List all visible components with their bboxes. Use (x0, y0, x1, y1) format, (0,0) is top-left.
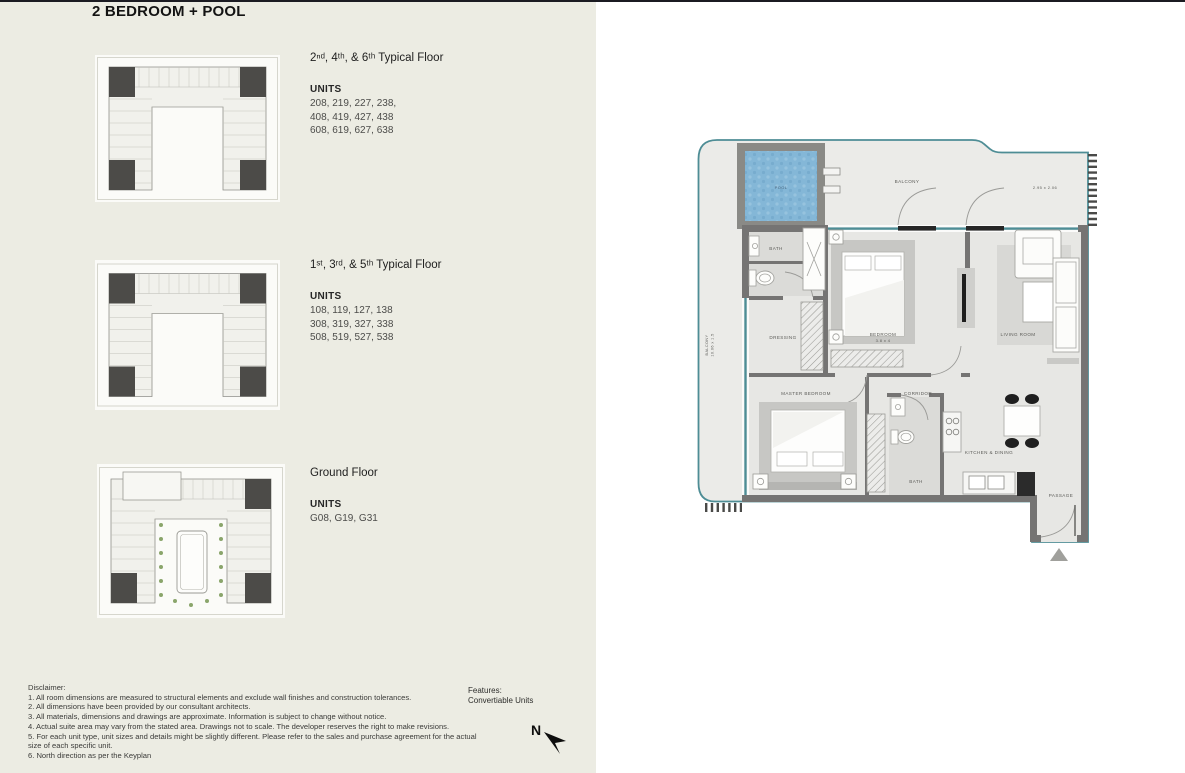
features-value: Convertiable Units (468, 696, 533, 706)
bath2-label: BATH (909, 479, 923, 484)
coffee-table (1023, 282, 1053, 322)
units-line: 308, 319, 327, 338 (310, 318, 393, 332)
units-list-135: 108, 119, 127, 138 308, 319, 327, 338 50… (310, 304, 393, 345)
toilet (756, 271, 774, 285)
sink (891, 398, 905, 416)
bedroom-dim: 3.8 x 4 (876, 338, 891, 343)
keyplan-ground-floor (97, 464, 285, 618)
units-line: 108, 119, 127, 138 (310, 304, 393, 318)
fridge (1017, 472, 1035, 496)
disclaimer: Disclaimer: 1. All room dimensions are m… (28, 683, 480, 761)
keyplan-typical-135 (95, 260, 280, 410)
keyplan-highlight-unit (109, 67, 135, 97)
disclaimer-item: 5. For each unit type, unit sizes and de… (28, 732, 480, 751)
floor-plan: POOL BALCONY 2.95 x 2.06 BALCONY 10.06 x… (685, 130, 1105, 575)
balcony-door-leaf (966, 226, 1004, 231)
bath1-label: BATH (769, 246, 783, 251)
disclaimer-item: 4. Actual suite area may vary from the s… (28, 722, 480, 732)
units-list-246: 208, 219, 227, 238, 408, 419, 427, 438 6… (310, 97, 396, 138)
pool-label: POOL (775, 185, 788, 190)
disclaimer-label: Disclaimer: (28, 683, 480, 693)
entry-triangle-marker (1050, 548, 1068, 561)
keyplan-courtyard-pool (177, 531, 207, 593)
units-label-ground: UNITS (310, 499, 342, 510)
dressing-label: DRESSING (769, 335, 796, 340)
master-bedroom-label: MASTER BEDROOM (781, 391, 831, 396)
units-line: 608, 619, 627, 638 (310, 124, 396, 138)
left-panel: 2 BEDROOM + POOL 2ⁿᵈ, 4ᵗʰ, & 6ᵗʰ Typical… (0, 0, 596, 773)
balcony-top-label: BALCONY (895, 179, 920, 184)
units-line: 408, 419, 427, 438 (310, 111, 396, 125)
keyplan-highlight-unit (111, 573, 137, 603)
units-label-135: UNITS (310, 291, 342, 302)
balcony-left-label: BALCONY (705, 334, 709, 355)
bedroom-label: BEDROOM (870, 332, 897, 337)
dining-chair (1025, 394, 1039, 404)
toilet-tank (749, 270, 756, 286)
north-arrow-icon (542, 729, 570, 757)
page-top-border (0, 0, 1185, 2)
disclaimer-item: 1. All room dimensions are measured to s… (28, 693, 480, 703)
section-heading-246: 2ⁿᵈ, 4ᵗʰ, & 6ᵗʰ Typical Floor (310, 52, 443, 64)
keyplan-highlight-unit (240, 160, 266, 190)
units-line: G08, G19, G31 (310, 512, 378, 526)
balcony-left-dim: 10.06 x 1.5 (711, 333, 715, 356)
section-heading-135: 1ˢᵗ, 3ʳᵈ, & 5ᵗʰ Typical Floor (310, 259, 441, 271)
dining-table (1004, 406, 1040, 436)
units-list-ground: G08, G19, G31 (310, 512, 378, 526)
living-room-label: LIVING ROOM (1000, 332, 1035, 337)
units-line: 508, 519, 527, 538 (310, 331, 393, 345)
dining-chair (1005, 394, 1019, 404)
north-label: N (531, 722, 541, 738)
dining-chair (1025, 438, 1039, 448)
page-title: 2 BEDROOM + POOL (92, 3, 246, 20)
disclaimer-item: 3. All materials, dimensions and drawing… (28, 712, 480, 722)
units-line: 208, 219, 227, 238, (310, 97, 396, 111)
section-heading-ground: Ground Floor (310, 467, 378, 479)
corridor-label: CORRIDOR (904, 391, 932, 396)
keyplan-highlight-unit (240, 274, 266, 304)
sofa (1053, 258, 1079, 352)
tv (962, 274, 966, 322)
disclaimer-item: 2. All dimensions have been provided by … (28, 702, 480, 712)
keyplan-entrance-annex (123, 472, 181, 500)
features-block: Features: Convertiable Units (468, 686, 533, 706)
passage-label: PASSAGE (1049, 493, 1073, 498)
features-label: Features: (468, 686, 533, 696)
keyplan-highlight-unit (109, 367, 135, 397)
pool-ladder (823, 186, 840, 193)
units-label-246: UNITS (310, 84, 342, 95)
dining-chair (1005, 438, 1019, 448)
pool (737, 143, 840, 229)
keyplan-highlight-unit (109, 160, 135, 190)
toilet-tank (891, 430, 898, 444)
console (1047, 358, 1079, 364)
keyplan-highlight-unit (109, 274, 135, 304)
pool-ladder (823, 168, 840, 175)
balcony-door-leaf (898, 226, 936, 231)
balcony-top-dim: 2.95 x 2.06 (1033, 185, 1058, 190)
disclaimer-item: 6. North direction as per the Keyplan (28, 751, 480, 761)
bedroom-bed (831, 240, 915, 344)
kitchen-sink (988, 476, 1004, 489)
north-indicator: N (531, 722, 577, 762)
keyplan-highlight-unit (240, 367, 266, 397)
keyplan-highlight-unit (245, 479, 271, 509)
kitchen-sink (969, 476, 985, 489)
keyplan-highlight-unit (245, 573, 271, 603)
keyplan-typical-246 (95, 55, 280, 202)
kitchen-dining-label: KITCHEN & DINING (965, 450, 1013, 455)
keyplan-highlight-unit (240, 67, 266, 97)
toilet (898, 431, 914, 444)
